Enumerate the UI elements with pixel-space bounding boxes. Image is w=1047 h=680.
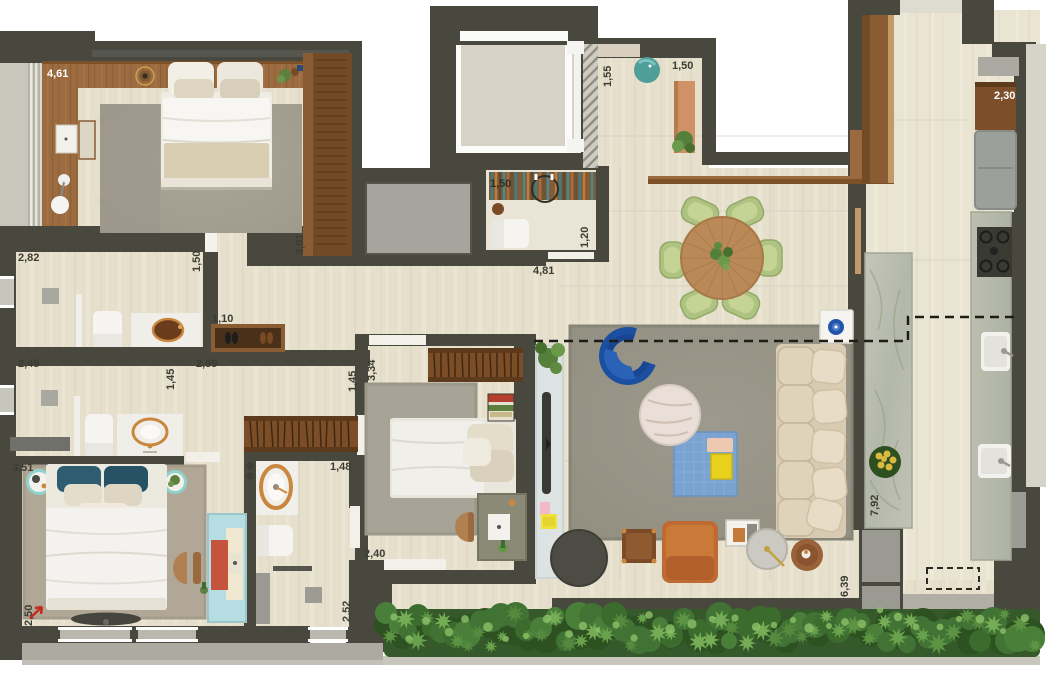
svg-text:1,55: 1,55	[602, 66, 614, 87]
svg-text:1,50: 1,50	[490, 178, 511, 190]
svg-text:1,48: 1,48	[330, 461, 351, 473]
svg-text:7,92: 7,92	[869, 495, 881, 516]
svg-text:2,59: 2,59	[196, 358, 217, 370]
svg-text:1,45: 1,45	[165, 369, 177, 390]
svg-text:4,61: 4,61	[47, 68, 68, 80]
svg-text:2,30: 2,30	[994, 90, 1015, 102]
svg-text:2,82: 2,82	[18, 252, 39, 264]
svg-text:3,34: 3,34	[366, 359, 378, 381]
svg-text:3,01: 3,01	[294, 234, 306, 255]
svg-text:4,81: 4,81	[533, 265, 554, 277]
svg-text:6,39: 6,39	[839, 576, 851, 597]
svg-text:1,50: 1,50	[191, 251, 203, 272]
svg-text:1,10: 1,10	[212, 313, 233, 325]
svg-text:3,51: 3,51	[12, 462, 33, 474]
svg-text:1,45: 1,45	[347, 371, 359, 392]
svg-text:2,45: 2,45	[18, 358, 39, 370]
svg-text:1,20: 1,20	[579, 227, 591, 248]
svg-text:2,40: 2,40	[364, 548, 385, 560]
svg-text:2,52: 2,52	[341, 601, 353, 622]
svg-text:1,50: 1,50	[672, 60, 693, 72]
